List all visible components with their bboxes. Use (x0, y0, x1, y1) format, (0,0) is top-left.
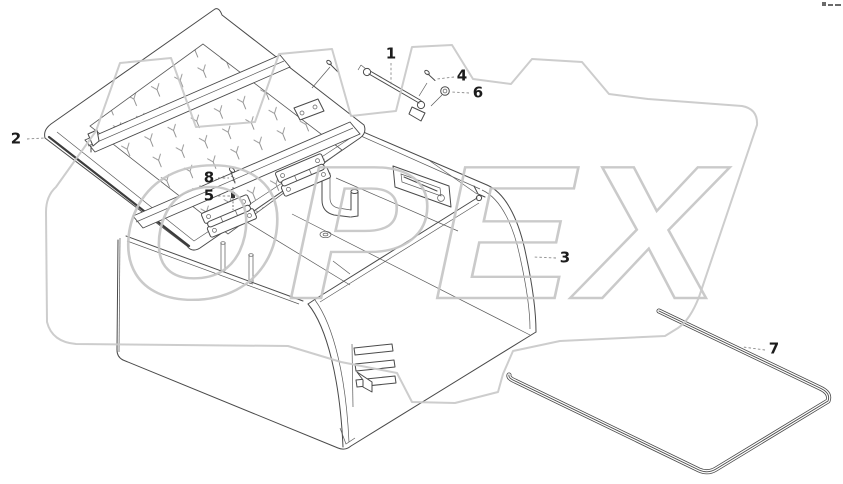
opex-watermark-text: OPEX (118, 127, 731, 339)
callout-label-2: 2 (11, 132, 21, 147)
leader-6 (451, 92, 469, 93)
nut-item-6 (431, 87, 449, 106)
callout-label-1: 1 (386, 47, 396, 62)
callout-label-8: 8 (204, 171, 214, 186)
callout-label-4: 4 (457, 69, 467, 84)
callout-label-6: 6 (473, 86, 483, 101)
diagram-page: OPEX 1 2 3 4 5 6 7 8 (0, 0, 843, 484)
screw-upper-left (312, 59, 338, 88)
callout-label-5: 5 (204, 189, 214, 204)
leader-2 (27, 138, 44, 139)
callout-label-3: 3 (560, 251, 570, 266)
exploded-view-drawing: OPEX (0, 0, 843, 484)
leader-7 (743, 347, 765, 350)
corner-stamp (822, 2, 841, 6)
leader-4 (437, 77, 454, 79)
callout-label-7: 7 (769, 342, 779, 357)
screw-item-4 (419, 69, 435, 96)
strut-rod-item-1 (358, 65, 425, 121)
